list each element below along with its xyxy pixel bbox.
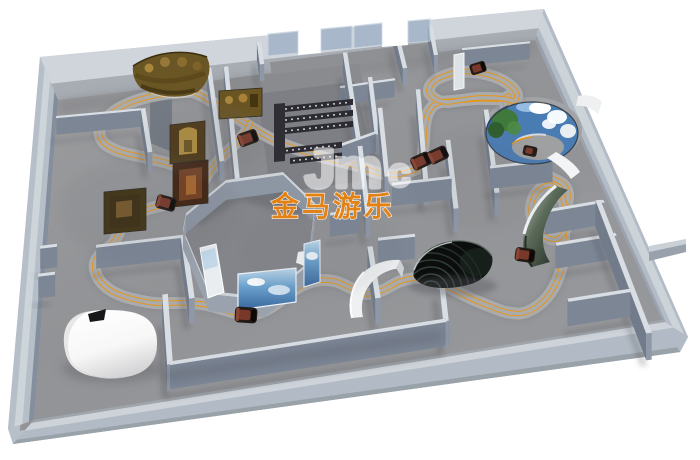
svg-text:金马游乐: 金马游乐 — [270, 190, 395, 222]
svg-text:c: c — [388, 151, 410, 195]
svg-text:Jm: Jm — [305, 139, 381, 199]
